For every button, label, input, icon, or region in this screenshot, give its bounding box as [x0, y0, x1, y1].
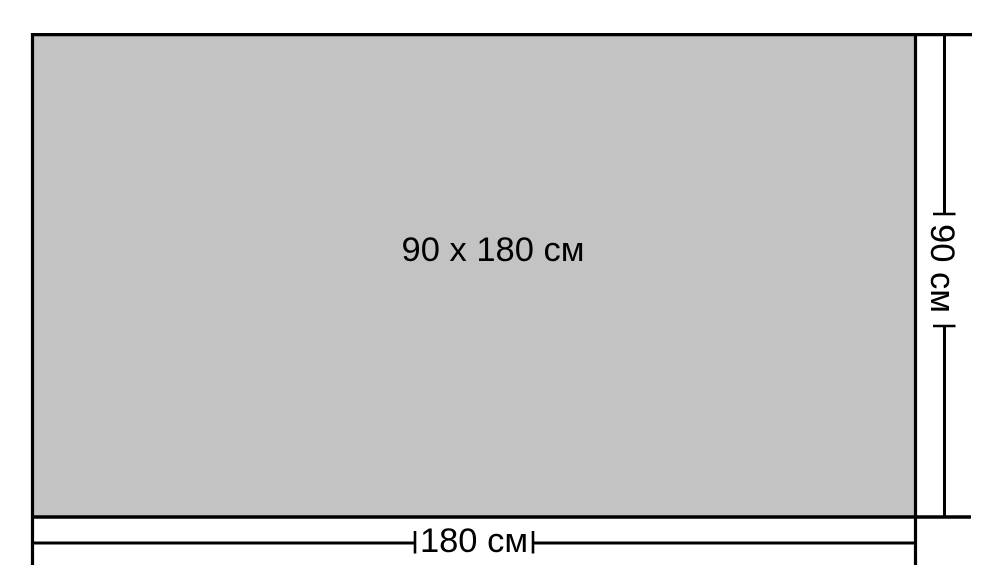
svg-text:90 см: 90 см	[923, 224, 961, 313]
svg-text:180 см: 180 см	[420, 522, 528, 560]
svg-text:90 x 180 см: 90 x 180 см	[402, 231, 585, 269]
